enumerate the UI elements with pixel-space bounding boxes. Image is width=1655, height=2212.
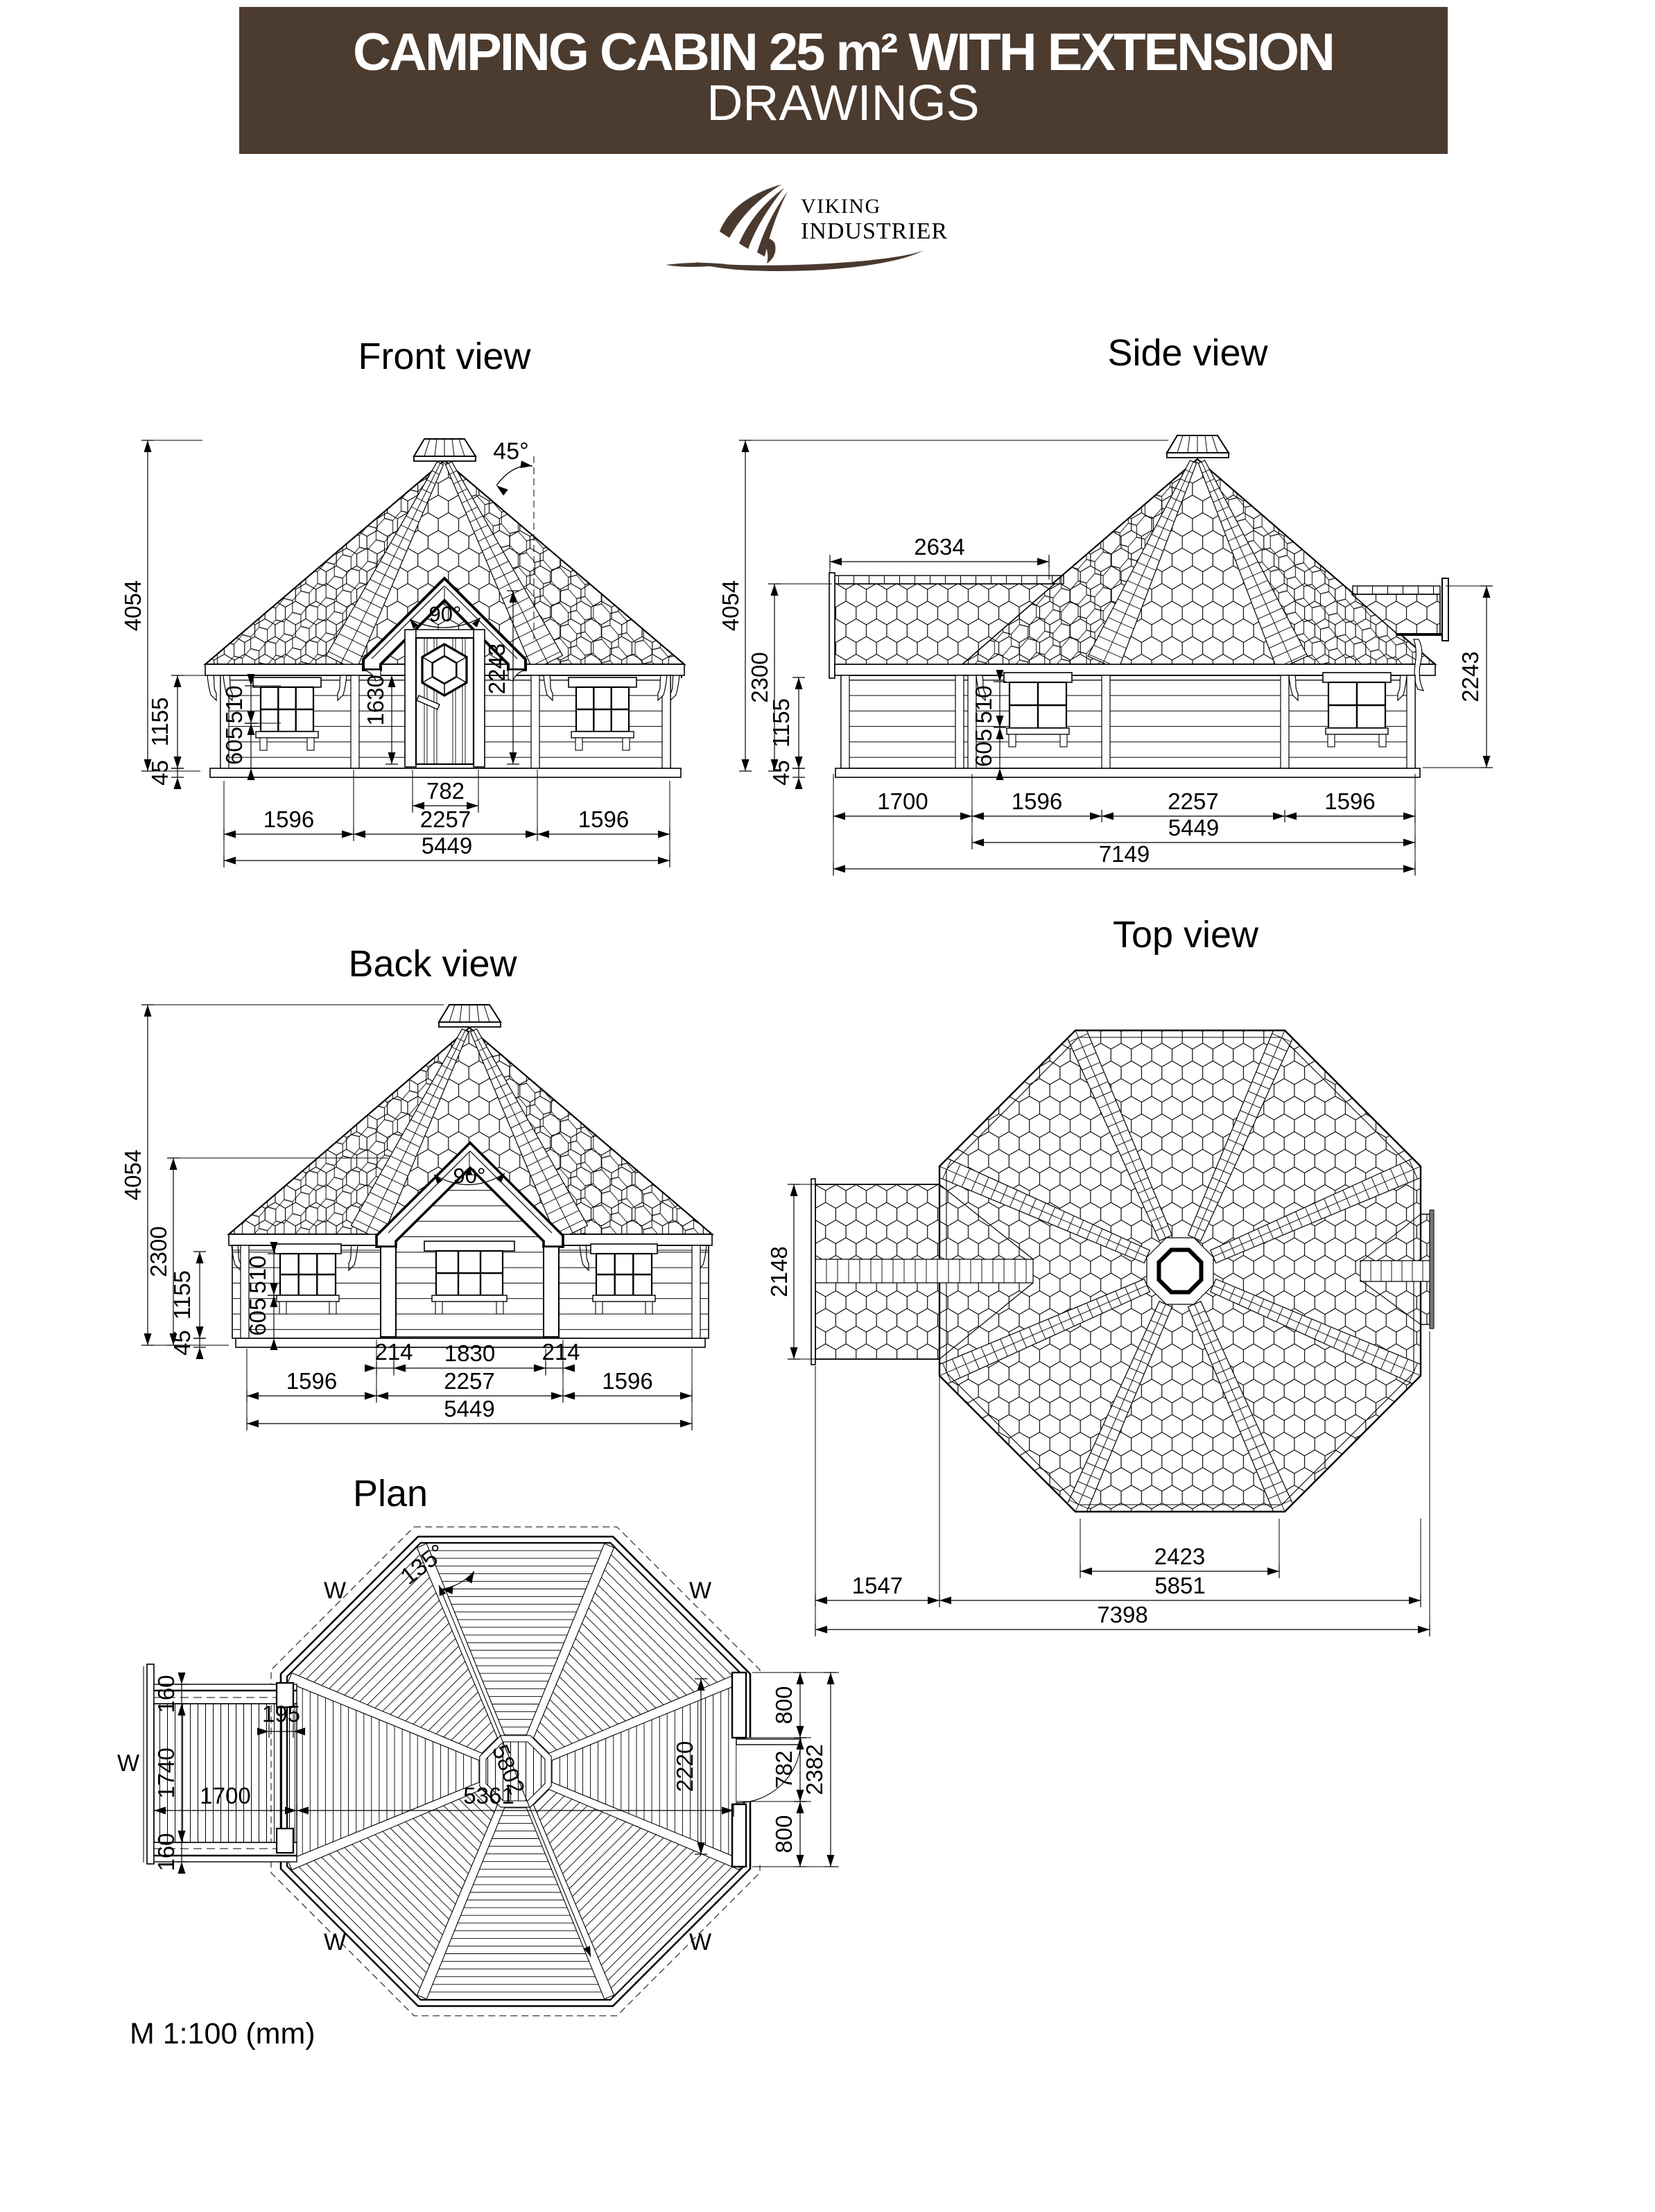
svg-text:1630: 1630: [363, 675, 388, 725]
svg-text:W: W: [117, 1750, 139, 1777]
svg-text:W: W: [324, 1578, 346, 1604]
svg-text:782: 782: [771, 1750, 797, 1788]
svg-text:45: 45: [768, 760, 794, 786]
svg-text:2300: 2300: [747, 652, 772, 702]
svg-text:7398: 7398: [1097, 1602, 1147, 1627]
svg-text:W: W: [324, 1929, 346, 1955]
svg-text:1155: 1155: [147, 698, 173, 747]
svg-text:1155: 1155: [768, 698, 794, 748]
svg-text:CAMPING CABIN 25 m² WITH EXTEN: CAMPING CABIN 25 m² WITH EXTENSION: [353, 23, 1333, 82]
svg-text:1596: 1596: [286, 1368, 337, 1394]
svg-text:2243: 2243: [484, 643, 510, 694]
svg-text:800: 800: [771, 1815, 797, 1853]
svg-text:1596: 1596: [1012, 788, 1062, 814]
svg-text:4054: 4054: [718, 580, 743, 631]
svg-text:800: 800: [771, 1686, 797, 1724]
svg-text:1830: 1830: [444, 1340, 495, 1366]
svg-text:1596: 1596: [602, 1368, 652, 1394]
svg-text:45°: 45°: [493, 438, 528, 465]
svg-text:214: 214: [374, 1339, 413, 1365]
svg-text:510: 510: [971, 685, 996, 723]
svg-text:605: 605: [971, 729, 996, 767]
svg-text:2148: 2148: [766, 1246, 792, 1297]
svg-text:1740: 1740: [153, 1747, 179, 1798]
svg-text:INDUSTRIER: INDUSTRIER: [801, 218, 948, 244]
svg-text:1155: 1155: [169, 1270, 195, 1320]
svg-text:1700: 1700: [877, 788, 928, 814]
svg-text:Top view: Top view: [1113, 914, 1259, 956]
svg-text:45: 45: [147, 760, 173, 786]
svg-text:1547: 1547: [852, 1573, 903, 1598]
svg-text:2257: 2257: [444, 1368, 494, 1394]
svg-text:45: 45: [169, 1330, 195, 1356]
svg-text:Side view: Side view: [1107, 332, 1268, 374]
svg-text:2423: 2423: [1154, 1544, 1205, 1569]
svg-text:Front view: Front view: [358, 336, 531, 377]
svg-text:2257: 2257: [1168, 788, 1218, 814]
svg-text:195: 195: [262, 1701, 300, 1727]
svg-text:Back view: Back view: [348, 943, 517, 985]
svg-text:1596: 1596: [263, 806, 314, 832]
svg-text:2382: 2382: [801, 1744, 827, 1795]
svg-text:DRAWINGS: DRAWINGS: [707, 76, 979, 131]
svg-text:7149: 7149: [1099, 841, 1150, 867]
svg-text:160: 160: [153, 1675, 179, 1713]
svg-text:214: 214: [541, 1339, 580, 1365]
svg-text:2257: 2257: [420, 806, 471, 832]
svg-text:2300: 2300: [146, 1226, 171, 1277]
svg-text:2220: 2220: [672, 1741, 697, 1792]
svg-text:1596: 1596: [1324, 788, 1375, 814]
svg-text:605: 605: [245, 1297, 270, 1336]
svg-text:4054: 4054: [120, 580, 146, 631]
svg-text:5851: 5851: [1154, 1573, 1205, 1598]
svg-text:5449: 5449: [1168, 815, 1219, 840]
svg-text:782: 782: [426, 778, 465, 804]
svg-text:W: W: [689, 1578, 711, 1604]
svg-text:160: 160: [153, 1833, 179, 1871]
svg-text:510: 510: [221, 685, 247, 723]
svg-text:M 1:100 (mm): M 1:100 (mm): [130, 2017, 315, 2050]
svg-text:5449: 5449: [422, 833, 472, 858]
svg-text:90°: 90°: [429, 602, 462, 626]
svg-text:1700: 1700: [200, 1783, 250, 1808]
svg-text:510: 510: [245, 1255, 270, 1293]
svg-text:VIKING: VIKING: [801, 195, 881, 218]
svg-text:2243: 2243: [1457, 651, 1483, 702]
svg-text:5449: 5449: [444, 1396, 494, 1422]
svg-text:W: W: [689, 1929, 711, 1955]
svg-text:4054: 4054: [120, 1150, 146, 1200]
svg-text:2634: 2634: [914, 534, 964, 560]
svg-text:1596: 1596: [578, 806, 629, 832]
svg-text:605: 605: [221, 727, 247, 765]
svg-text:Plan: Plan: [353, 1473, 428, 1514]
